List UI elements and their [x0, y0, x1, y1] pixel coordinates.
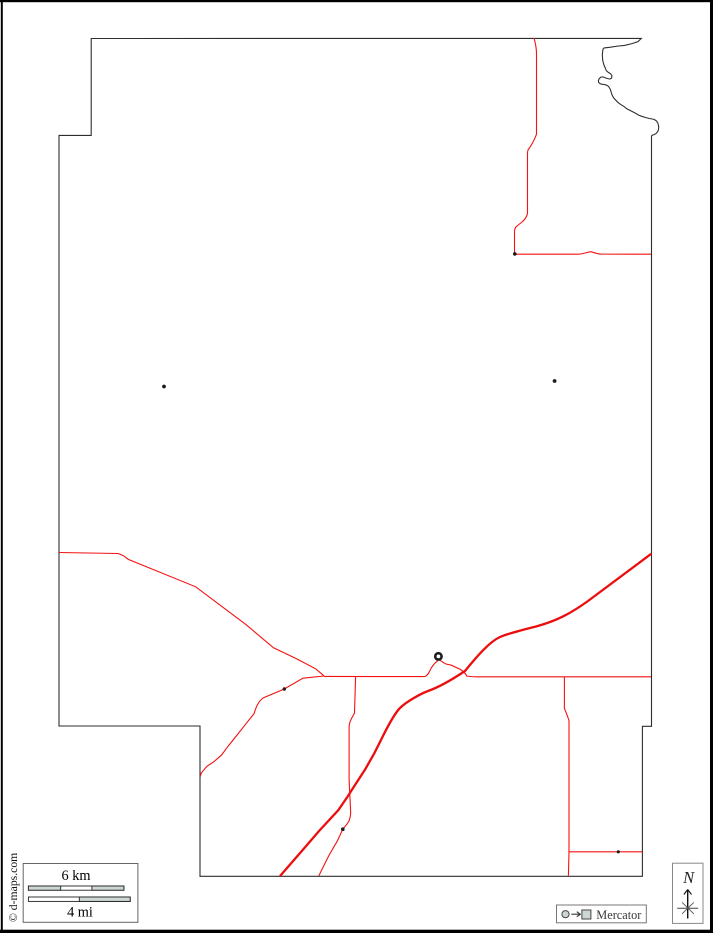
- svg-text:© d-maps.com: © d-maps.com: [7, 853, 20, 922]
- svg-text:4 mi: 4 mi: [67, 904, 93, 920]
- svg-text:6 km: 6 km: [62, 868, 91, 884]
- svg-text:Mercator: Mercator: [596, 908, 641, 922]
- svg-text:N: N: [682, 868, 695, 887]
